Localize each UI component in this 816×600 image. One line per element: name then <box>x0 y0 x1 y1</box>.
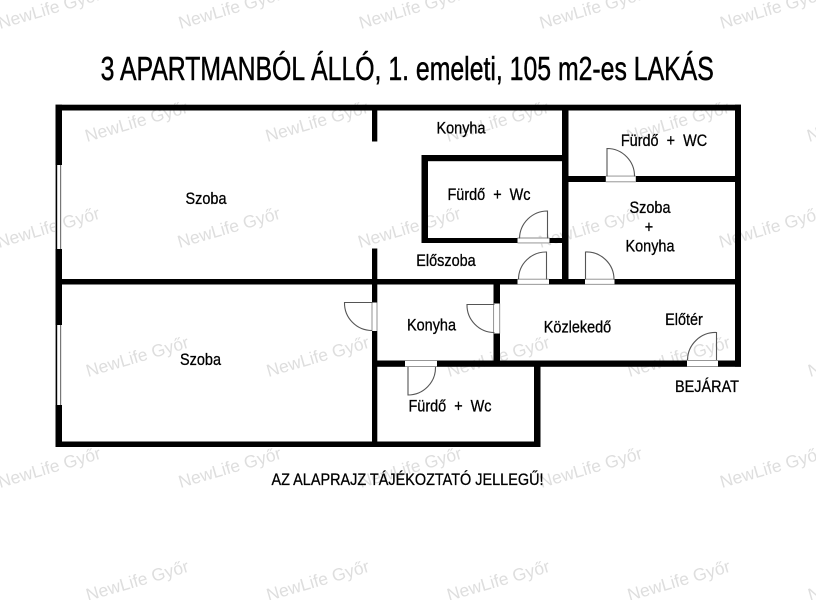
svg-text:Fürdő + Wc: Fürdő + Wc <box>447 186 530 204</box>
svg-text:AZ ALAPRAJZ TÁJÉKOZTATÓ JELLEG: AZ ALAPRAJZ TÁJÉKOZTATÓ JELLEGŰ! <box>271 469 543 489</box>
svg-text:Előtér: Előtér <box>665 311 703 329</box>
svg-text:Szoba: Szoba <box>180 351 221 369</box>
svg-text:BEJÁRAT: BEJÁRAT <box>675 376 739 396</box>
svg-text:Szoba: Szoba <box>186 190 227 208</box>
svg-text:Konyha: Konyha <box>626 237 675 255</box>
svg-text:Közlekedő: Közlekedő <box>544 318 612 336</box>
svg-text:+: + <box>645 218 653 236</box>
svg-text:Fürdő + WC: Fürdő + WC <box>621 132 707 150</box>
svg-text:Fürdő + Wc: Fürdő + Wc <box>408 397 491 415</box>
svg-text:Konyha: Konyha <box>407 316 456 334</box>
svg-text:Szoba: Szoba <box>630 199 671 217</box>
svg-text:Konyha: Konyha <box>437 119 486 137</box>
svg-text:3 APARTMANBÓL ÁLLÓ, 1. emeleti: 3 APARTMANBÓL ÁLLÓ, 1. emeleti, 105 m2-e… <box>101 51 714 88</box>
svg-text:Előszoba: Előszoba <box>416 252 476 270</box>
